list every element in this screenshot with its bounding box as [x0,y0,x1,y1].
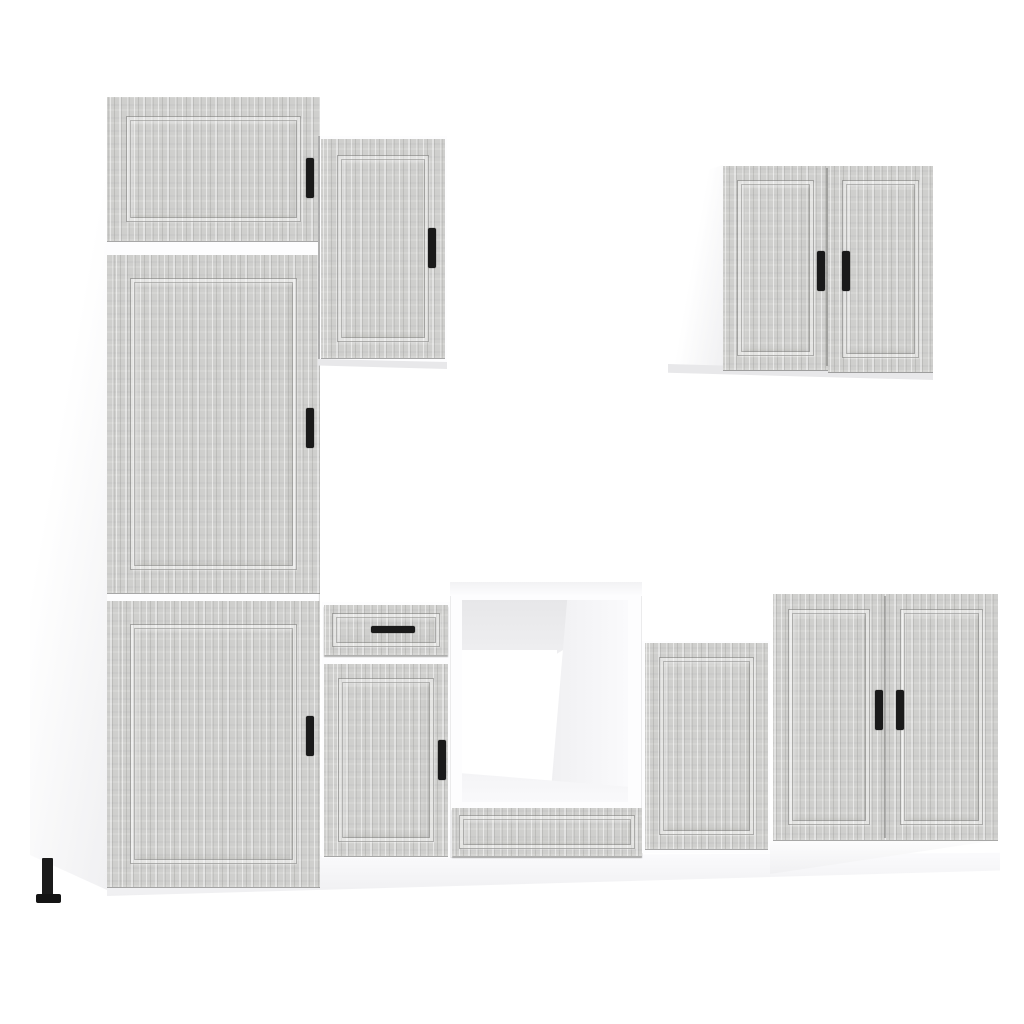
door-gap-seam [884,596,886,838]
base-cabinet-drawer-door [322,602,450,858]
tall-cabinet-bottom-door [107,601,320,887]
door-inner-frame [660,658,753,834]
door-handle [842,251,850,291]
door-handle [306,716,314,756]
oven-housing-base-panel [452,808,642,856]
tall-cabinet-middle-door [107,255,320,593]
door-inner-frame [131,279,296,569]
door-handle [428,228,436,268]
tall-cabinet [30,97,320,907]
cabinet-leg [42,858,53,896]
oven-housing-cabinet [450,582,642,858]
base-cabinet-drawer-door-door [324,664,448,856]
base-cabinet-low-single-door [645,643,768,849]
door-handle [438,740,446,780]
wall-cabinet-single-door [321,139,445,358]
door-inner-frame [738,181,813,355]
oven-housing-top-face [450,582,642,596]
door-inner-frame [131,625,296,863]
door-inner-frame [127,117,300,221]
wall-cabinet-single [318,136,447,380]
door-gap-seam [826,168,828,366]
tall-cabinet-side-panel [30,97,107,897]
door-inner-frame [843,181,918,357]
base-cabinet-double-left-door [773,594,885,840]
door-handle [306,158,314,198]
door-handle [896,690,904,730]
oven-cavity [462,600,628,802]
wall-cabinet-double [668,165,933,380]
door-inner-frame [338,156,428,341]
kitchen-cabinet-set-photo [0,0,1024,1024]
wall-cabinet-double-right-door [828,166,933,372]
base-cabinet-low-single [642,641,772,853]
door-inner-frame [339,679,433,841]
cabinet-leg-foot [36,894,61,903]
tall-cabinet-top-door [107,97,320,241]
door-handle [306,408,314,448]
wall-cabinet-double-side-panel [668,165,723,373]
wall-cabinet-double-left-door [723,166,828,370]
drawer-inner-frame [460,816,634,848]
drawer-handle [371,626,415,633]
base-cabinet-double-right-door [885,594,998,840]
door-handle [817,251,825,291]
door-inner-frame [789,610,869,824]
base-cabinet-double [770,588,1000,876]
oven-cavity-back-wall [462,650,557,770]
door-handle [875,690,883,730]
drawer-front [324,605,448,655]
door-inner-frame [901,610,982,824]
